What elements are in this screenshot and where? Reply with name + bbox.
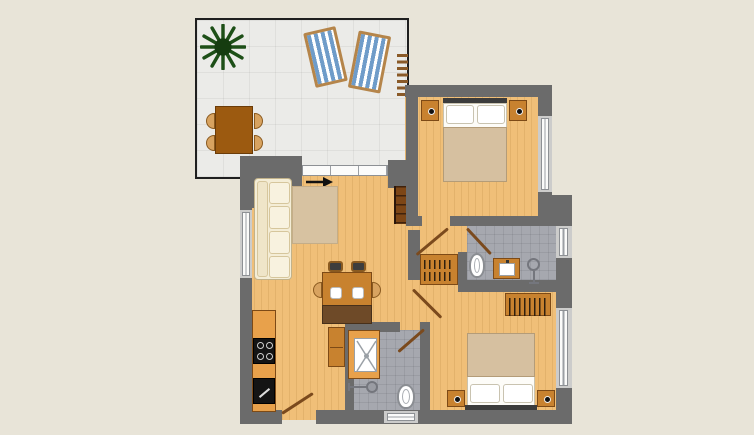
wall-bottom-left <box>240 410 282 424</box>
bed-headboard <box>465 405 537 410</box>
toilet <box>469 253 485 278</box>
nightstand <box>447 390 465 407</box>
wall-shower-room-right <box>420 322 430 414</box>
vanity-sink <box>493 258 520 279</box>
side-chair <box>313 282 322 298</box>
outdoor-chair <box>254 113 263 129</box>
hall-wardrobe <box>420 254 458 285</box>
bedroom-wardrobe <box>505 293 551 316</box>
window-bedroom-bottom <box>559 310 568 386</box>
wall-top <box>405 85 552 97</box>
nightstand <box>421 100 439 121</box>
outdoor-table <box>215 106 253 154</box>
bed-blanket <box>443 127 507 182</box>
kitchen-sink <box>253 378 275 404</box>
terrace <box>195 18 409 179</box>
wall-bathroom-left <box>458 252 467 282</box>
wall-bathroom-bottom <box>458 280 572 292</box>
window-living-room <box>242 212 250 276</box>
window-shower-room <box>387 413 415 421</box>
toilet <box>397 384 415 409</box>
wall-bedroom-top-bottom-a <box>406 216 422 226</box>
corner-sofa <box>254 178 292 280</box>
terrace-glass-door <box>302 165 388 176</box>
rug <box>292 186 338 244</box>
pillow <box>470 384 500 403</box>
nightstand <box>537 390 555 407</box>
plate <box>330 287 342 299</box>
dining-chair <box>351 261 366 272</box>
wall-bathroom-top <box>450 216 572 226</box>
wall-shelf <box>394 186 406 224</box>
deck-chair <box>303 26 348 88</box>
nightstand <box>509 100 527 121</box>
pillow <box>503 384 533 403</box>
sideboard-bench <box>322 305 372 324</box>
wall-bottom <box>316 410 572 424</box>
pillow <box>477 105 505 124</box>
outdoor-chair <box>254 135 263 151</box>
shower-fixture-icon <box>526 257 542 285</box>
wall-bedroom-top-left <box>406 85 418 216</box>
cabinet <box>328 327 345 367</box>
bed-blanket <box>467 333 535 377</box>
outdoor-chair <box>206 113 215 129</box>
window-bedroom-top <box>541 118 549 190</box>
floor-plan-canvas <box>0 0 754 435</box>
plate <box>352 287 364 299</box>
shower-enclosure <box>348 330 380 379</box>
deck-chair <box>348 30 391 93</box>
dining-chair <box>328 261 343 272</box>
outdoor-chair <box>206 135 215 151</box>
cooktop <box>253 338 275 364</box>
window-bathroom <box>559 228 568 256</box>
shower-fixture-icon <box>348 380 380 394</box>
pillow <box>446 105 474 124</box>
potted-plant-icon <box>200 24 246 70</box>
